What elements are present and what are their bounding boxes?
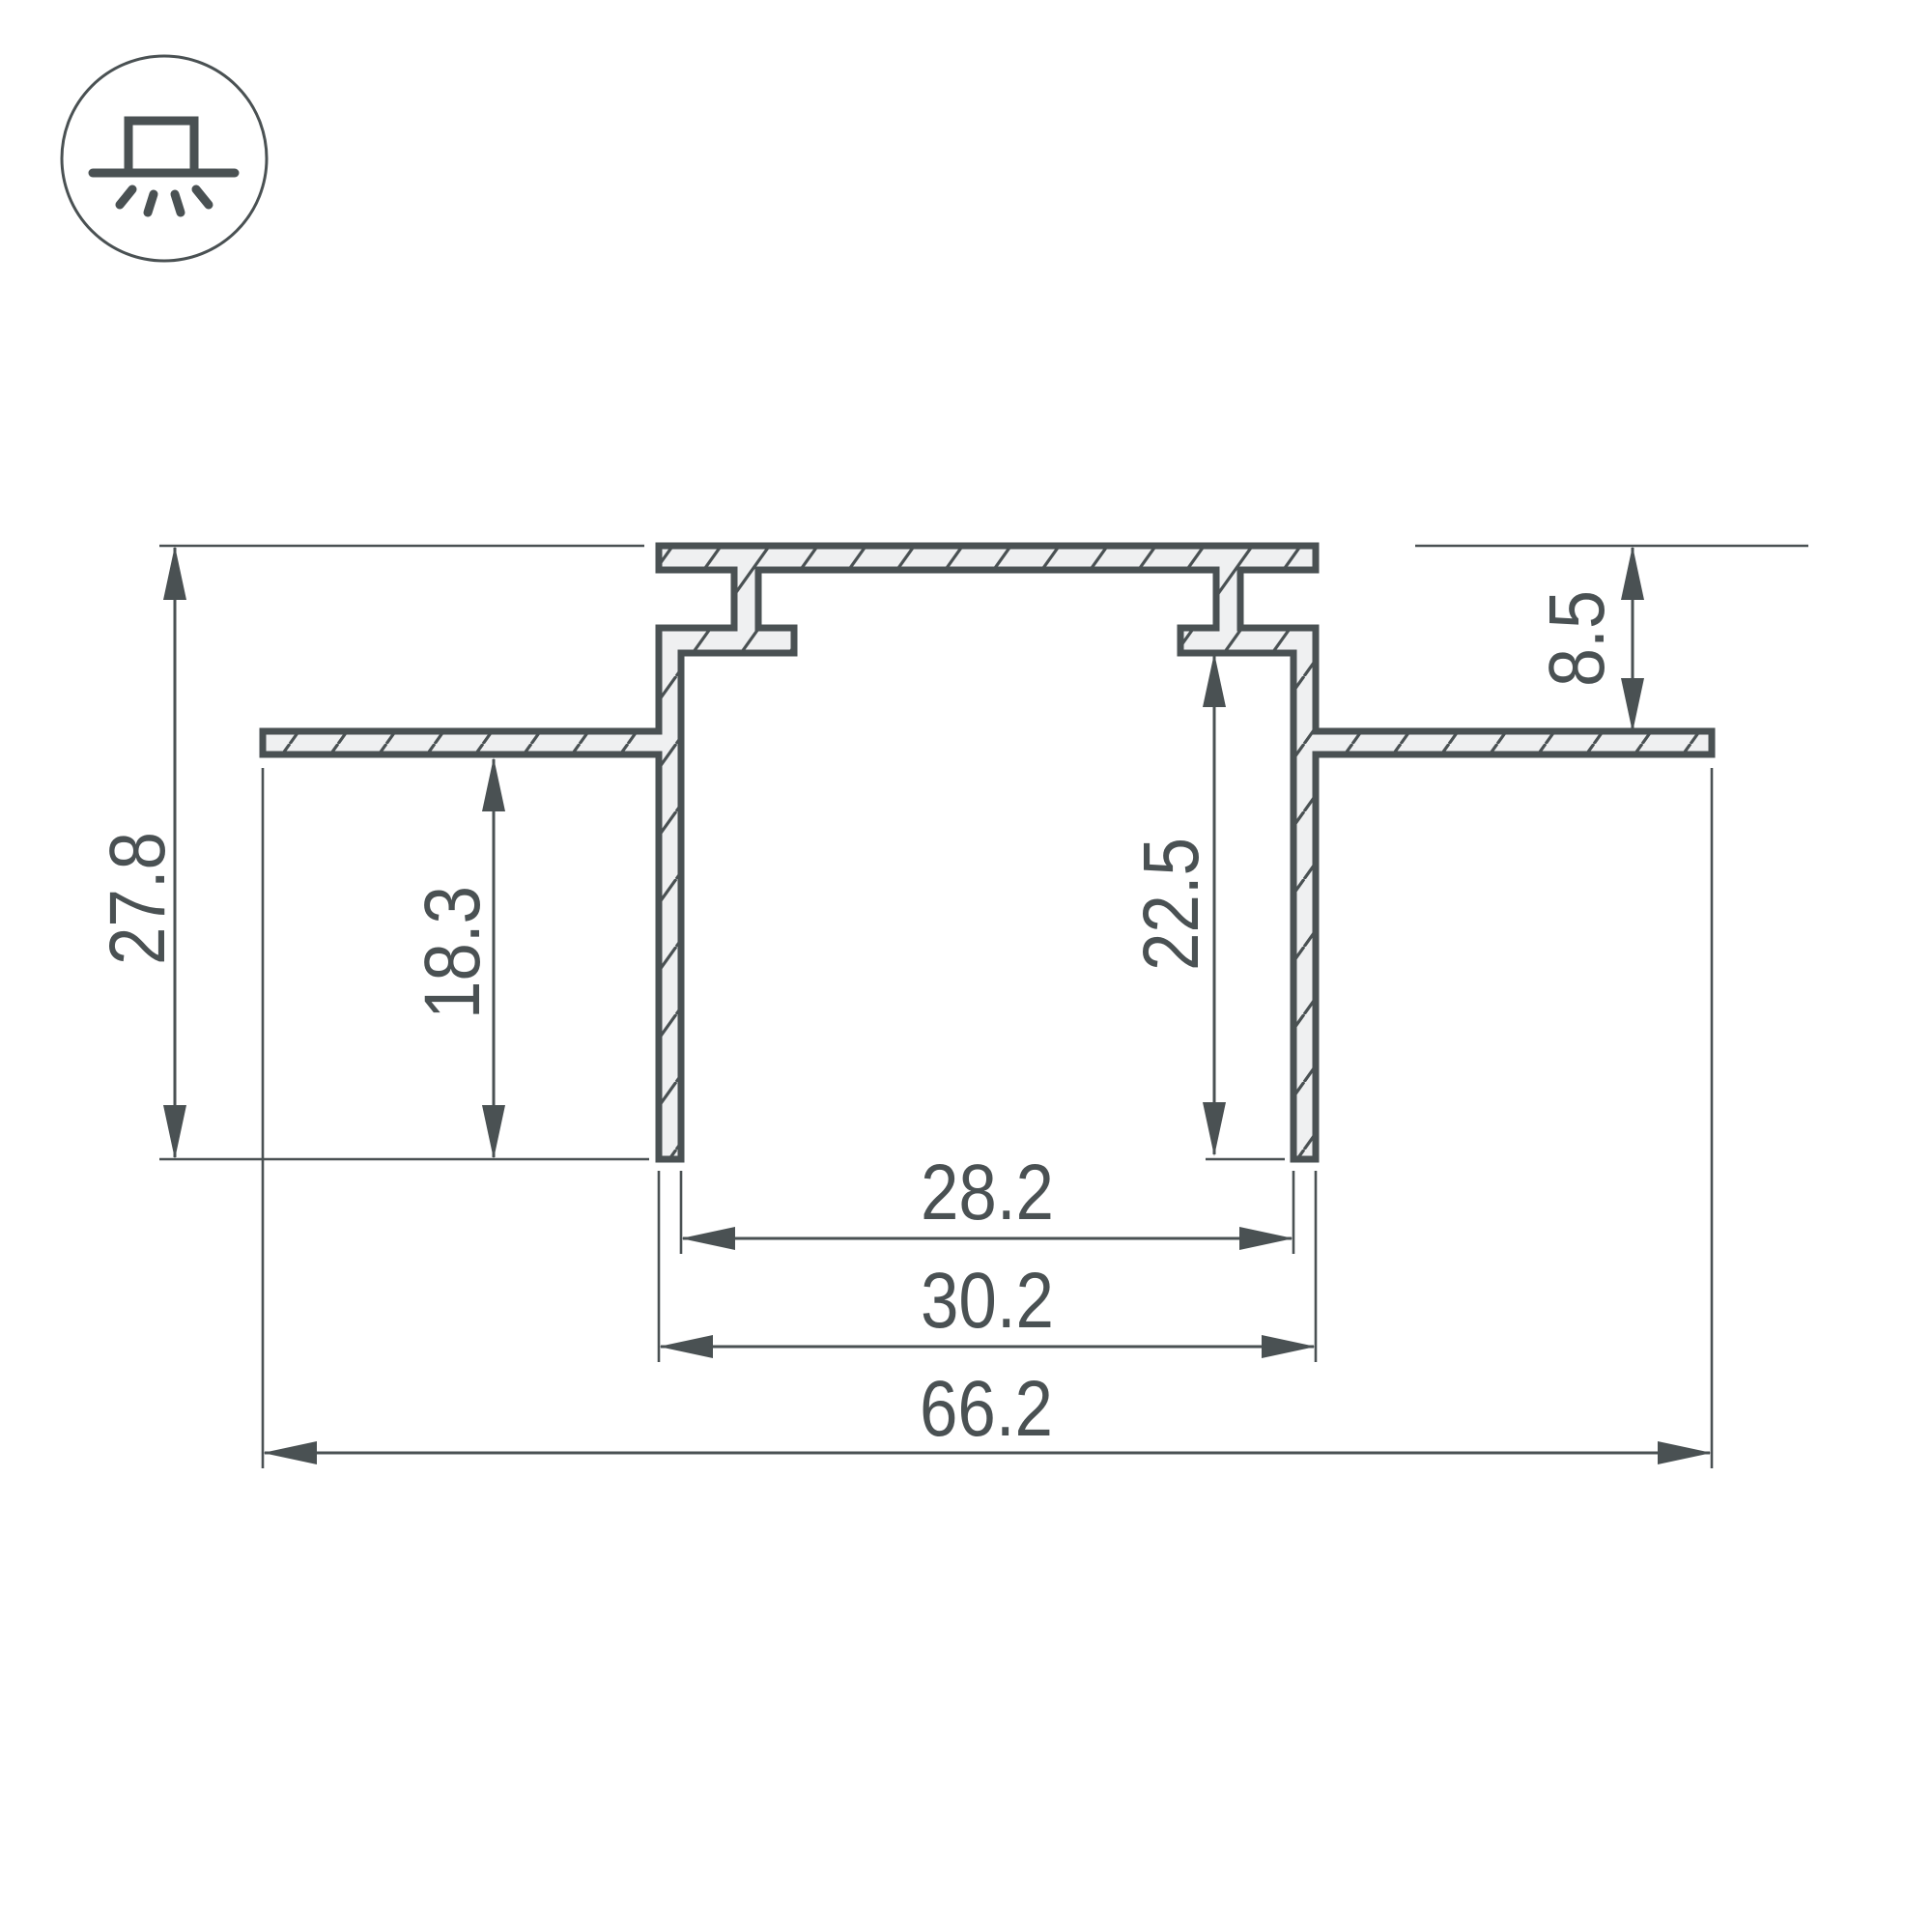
dim-inner-width-label: 28.2 <box>921 1149 1054 1236</box>
dim-overall-height-label: 27.8 <box>94 832 182 965</box>
dim-outer-width-arrow-right <box>1262 1335 1316 1358</box>
profile-cross-section <box>263 546 1712 1159</box>
dim-wing-to-bottom-label: 18.3 <box>409 886 497 1019</box>
icon-ray-4 <box>196 189 209 205</box>
dim-overall-height-arrow-bottom <box>163 1105 186 1159</box>
dim-inner-width-arrow-right <box>1239 1227 1293 1250</box>
dim-top-to-wing-arrow-top <box>1621 546 1644 600</box>
icon-fixture-square <box>128 121 194 173</box>
dim-outer-width: 30.2 <box>659 1257 1316 1358</box>
dim-wing-to-bottom-arrow-bottom <box>482 1105 505 1159</box>
icon-ray-1 <box>120 189 132 205</box>
dim-wing-to-bottom: 18.3 <box>409 757 505 1159</box>
icon-ray-3 <box>175 194 181 213</box>
dim-cavity-depth-arrow-top <box>1203 653 1226 707</box>
dim-wing-to-bottom-arrow-top <box>482 757 505 811</box>
profile-body <box>263 546 1712 1159</box>
dim-cavity-depth-arrow-bottom <box>1203 1102 1226 1156</box>
icon-ray-2 <box>148 194 154 213</box>
dim-overall-width-label: 66.2 <box>920 1365 1053 1453</box>
dim-overall-height-arrow-top <box>163 546 186 600</box>
dim-top-to-wing: 8.5 <box>1533 546 1644 732</box>
dim-inner-width: 28.2 <box>681 1149 1293 1250</box>
dim-outer-width-arrow-left <box>659 1335 713 1358</box>
dim-overall-height: 27.8 <box>94 546 186 1159</box>
technical-drawing: 27.8 18.3 22.5 8.5 28.2 30.2 <box>0 0 1932 1932</box>
drawing-canvas: 27.8 18.3 22.5 8.5 28.2 30.2 <box>0 0 1932 1932</box>
icon-circle <box>62 56 267 261</box>
dim-overall-width: 66.2 <box>263 1365 1712 1464</box>
profile-hatch <box>263 546 1712 1159</box>
dim-overall-width-arrow-left <box>263 1441 317 1464</box>
dim-overall-width-arrow-right <box>1658 1441 1712 1464</box>
dim-top-to-wing-arrow-bottom <box>1621 678 1644 732</box>
recessed-light-icon <box>62 56 267 261</box>
dim-cavity-depth: 22.5 <box>1127 653 1226 1156</box>
dim-inner-width-arrow-left <box>681 1227 735 1250</box>
dim-top-to-wing-label: 8.5 <box>1533 590 1621 687</box>
dim-outer-width-label: 30.2 <box>921 1257 1054 1345</box>
icon-light-rays <box>120 189 209 213</box>
profile-outline <box>263 546 1712 1159</box>
dim-cavity-depth-label: 22.5 <box>1127 838 1215 971</box>
